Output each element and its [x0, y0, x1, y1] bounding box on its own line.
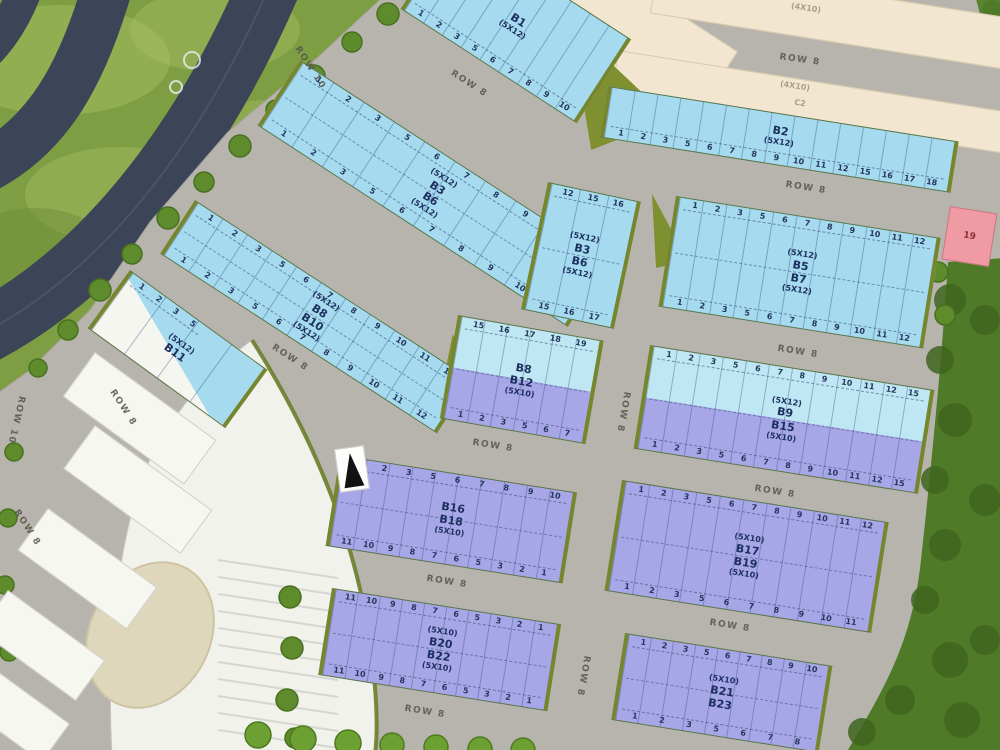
site-plan: B1 (5X12) 1235678910 123567891011 (5X12)…: [0, 0, 1000, 750]
north-arrow-icon: [334, 445, 370, 493]
cream-block-c2-label: C2: [794, 98, 807, 109]
decor-circle: [170, 81, 182, 93]
block-lot-19: 19: [942, 206, 998, 267]
block-label: 19: [943, 207, 997, 266]
